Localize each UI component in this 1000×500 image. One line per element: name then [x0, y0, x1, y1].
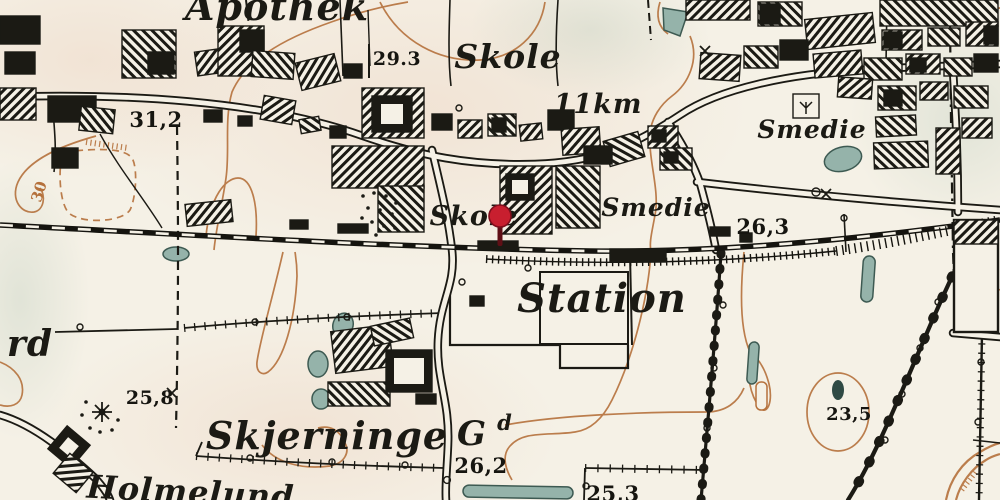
- elevation-26-3: 26,3: [736, 214, 789, 239]
- label-gd-d: d: [497, 410, 513, 435]
- map-canvas[interactable]: Apothek Skole 29.3 11km Smedie 31,2 30 S…: [0, 0, 1000, 500]
- elevation-29-3: 29.3: [373, 48, 421, 70]
- label-gd-g: G: [457, 414, 487, 454]
- elevation-23-5: 23,5: [826, 404, 872, 425]
- label-smedie-mid: Smedie: [601, 193, 710, 222]
- windmill-star-icon: [92, 402, 112, 422]
- label-gaard-partial: rd: [7, 323, 53, 365]
- elevation-26-2: 26,2: [454, 453, 507, 478]
- elevation-31-2: 31,2: [129, 107, 182, 132]
- label-skole-top: Skole: [454, 37, 561, 76]
- label-skjerninge: Skjerninge: [206, 413, 448, 458]
- map-svg[interactable]: Apothek Skole 29.3 11km Smedie 31,2 30 S…: [0, 0, 1000, 500]
- station-pin-head-icon: [489, 205, 511, 227]
- label-station: Station: [517, 275, 687, 322]
- label-11km: 11km: [554, 89, 643, 120]
- elevation-25-8: 25,8: [126, 387, 174, 409]
- label-apothek: Apothek: [182, 0, 369, 29]
- label-smedie-top: Smedie: [757, 115, 866, 144]
- elevation-25-3: 25,3: [586, 481, 639, 500]
